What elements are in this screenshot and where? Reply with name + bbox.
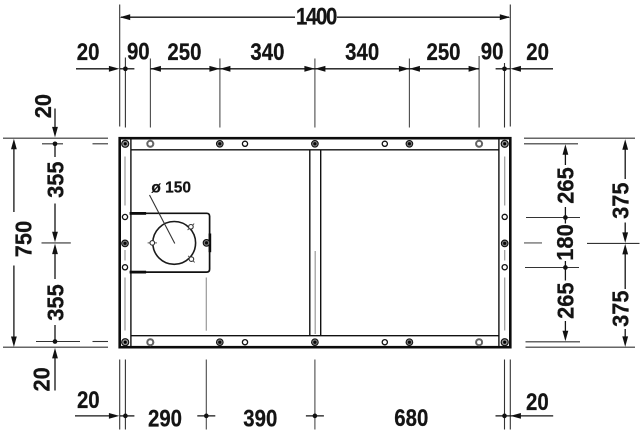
- svg-text:340: 340: [250, 38, 284, 65]
- svg-text:90: 90: [481, 38, 504, 65]
- svg-text:20: 20: [77, 38, 100, 65]
- svg-text:355: 355: [43, 284, 69, 320]
- svg-text:1400: 1400: [296, 3, 337, 30]
- svg-text:20: 20: [526, 38, 549, 65]
- svg-text:180: 180: [553, 224, 579, 260]
- svg-text:355: 355: [43, 161, 69, 197]
- svg-text:90: 90: [127, 38, 150, 65]
- svg-text:265: 265: [553, 167, 579, 203]
- svg-text:20: 20: [31, 94, 57, 118]
- svg-text:390: 390: [243, 405, 277, 431]
- svg-text:750: 750: [11, 221, 37, 257]
- svg-text:680: 680: [394, 404, 428, 431]
- svg-text:375: 375: [608, 290, 634, 326]
- svg-text:20: 20: [77, 386, 100, 413]
- svg-text:ø 150: ø 150: [151, 179, 191, 196]
- svg-text:375: 375: [608, 182, 634, 218]
- svg-text:250: 250: [167, 38, 201, 65]
- svg-text:250: 250: [426, 38, 460, 65]
- svg-text:20: 20: [526, 388, 549, 415]
- svg-text:20: 20: [29, 367, 55, 391]
- svg-text:290: 290: [148, 405, 182, 431]
- svg-text:340: 340: [345, 38, 379, 65]
- svg-text:265: 265: [553, 282, 579, 318]
